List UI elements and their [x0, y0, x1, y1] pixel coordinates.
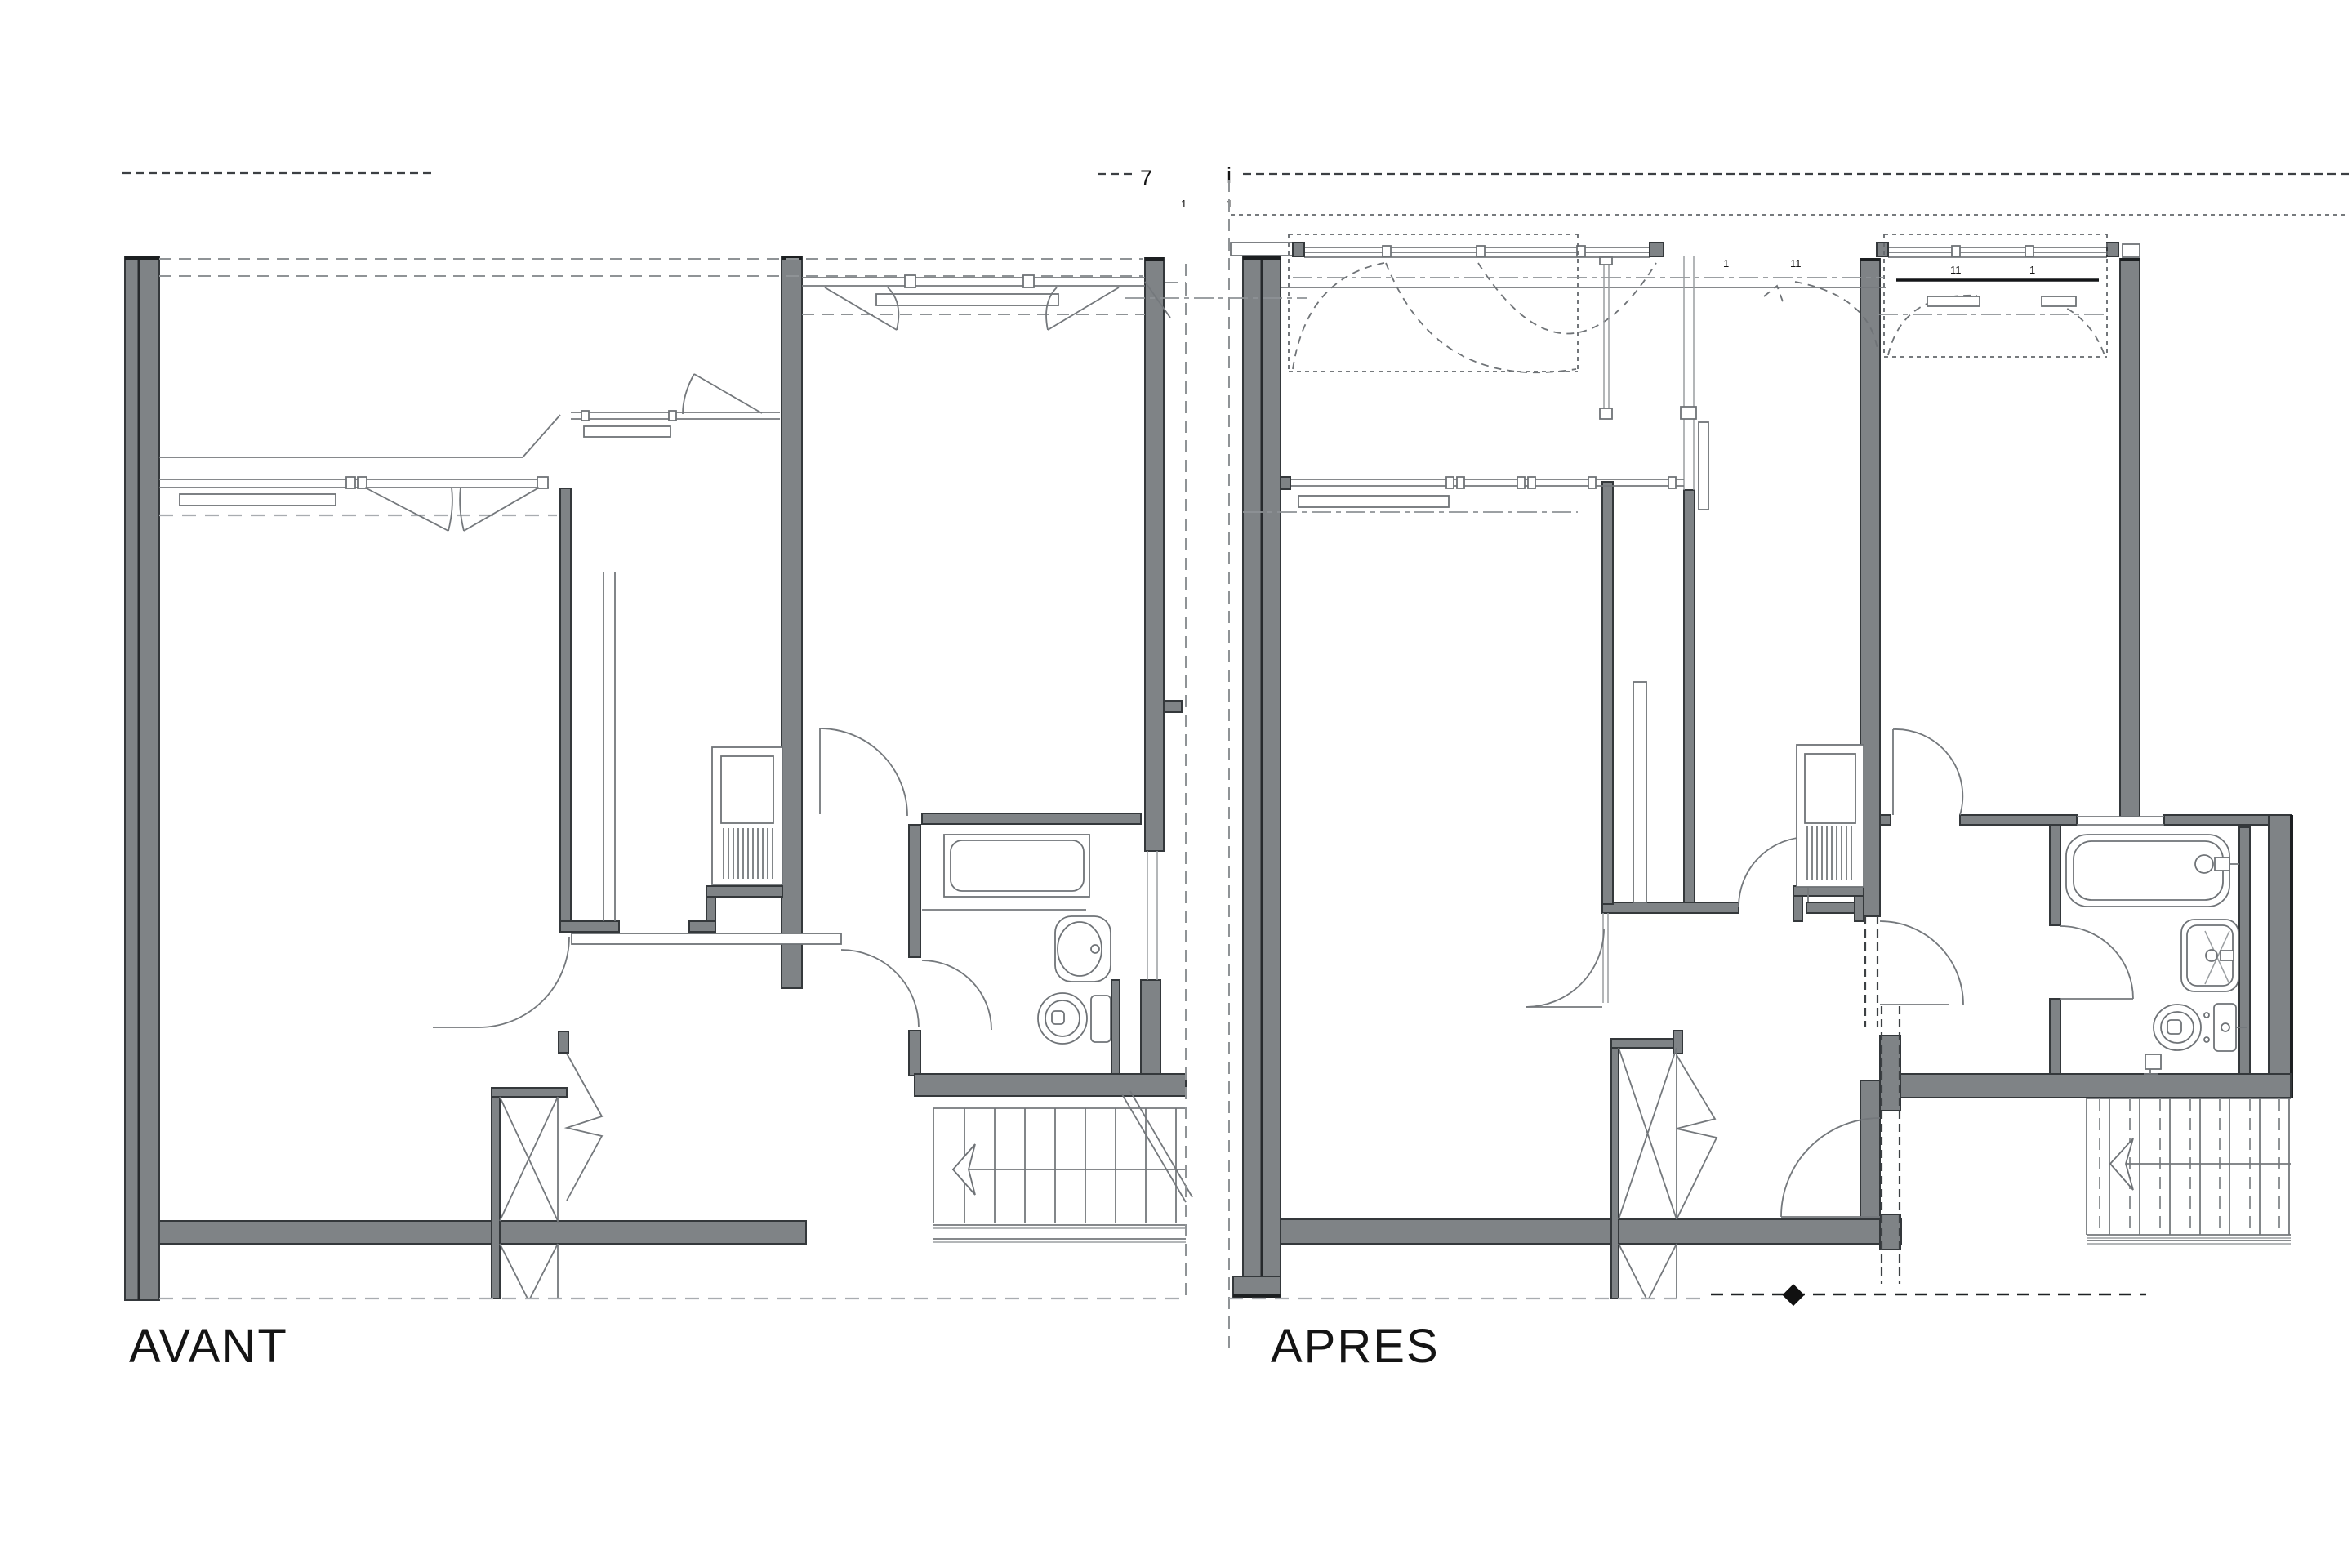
section-marker-7: 7 — [1140, 166, 1152, 190]
avant-walls — [125, 257, 1186, 1300]
radiator — [1298, 496, 1449, 507]
sink — [2181, 920, 2238, 991]
toilet — [1038, 993, 1111, 1044]
folding-door — [567, 1053, 602, 1200]
apres-label: APRES — [1271, 1320, 1440, 1373]
avant-stairs — [933, 1091, 1192, 1242]
tick-11b: 11 — [1950, 264, 1962, 276]
apres-bathroom — [2066, 817, 2247, 1074]
floor-drain — [2144, 1054, 2161, 1074]
radiator — [876, 294, 1058, 305]
apres-water-heater — [1797, 745, 1864, 887]
water-heater — [712, 747, 782, 884]
tick-1c: 1 — [1723, 257, 1729, 269]
bathtub — [2066, 835, 2239, 906]
chambre2-south-door-arc — [1893, 729, 1962, 815]
sliding-panel — [1927, 296, 1980, 306]
hall-door-arc — [841, 950, 919, 1027]
avant-hall — [433, 933, 919, 1027]
wc-door-arc — [922, 960, 991, 1030]
avant-annotations: 7 1 — [122, 166, 1187, 210]
avant-bedroom — [802, 275, 1186, 816]
floor-plan-canvas: 7 1 — [0, 0, 2352, 1568]
folding-door — [1677, 1055, 1717, 1219]
tick-1a: 1 — [1181, 198, 1187, 210]
bedroom-door — [820, 728, 907, 816]
apres-partition-band — [1243, 422, 1708, 902]
french-door-leaves — [365, 488, 539, 531]
apres-closet — [1611, 1031, 1717, 1298]
bathroom-door-arc — [2060, 926, 2133, 999]
curtain-boxes — [1289, 234, 2107, 372]
avant-closet — [492, 1031, 602, 1298]
avant-bathroom — [922, 835, 1157, 1044]
bathtub — [944, 835, 1089, 897]
apres-stairs — [2087, 1098, 2291, 1244]
radiator — [180, 494, 336, 506]
apres-annotations: i 1 1 11 11 1 — [1227, 163, 2349, 276]
avant-kitchen — [571, 374, 782, 921]
tick-1d: 1 — [2029, 264, 2035, 276]
avant-label: AVANT — [129, 1320, 288, 1373]
sliding-panel — [2042, 296, 2076, 306]
tick-11a: 11 — [1790, 257, 1802, 269]
entry-door-arc — [479, 937, 569, 1027]
avant-plan: 7 1 — [122, 166, 1192, 1373]
kitchen-door-leaf — [694, 374, 762, 413]
apres-plan: i 1 1 11 11 1 — [1125, 163, 2349, 1373]
survey-diamond-marker — [1783, 1284, 1805, 1306]
dressing-door-arc — [1880, 921, 1963, 1004]
sejour-door-arc — [1526, 929, 1604, 1007]
page: 7 1 — [0, 0, 2352, 1568]
toilet — [2154, 1004, 2247, 1051]
sink — [1055, 916, 1111, 982]
